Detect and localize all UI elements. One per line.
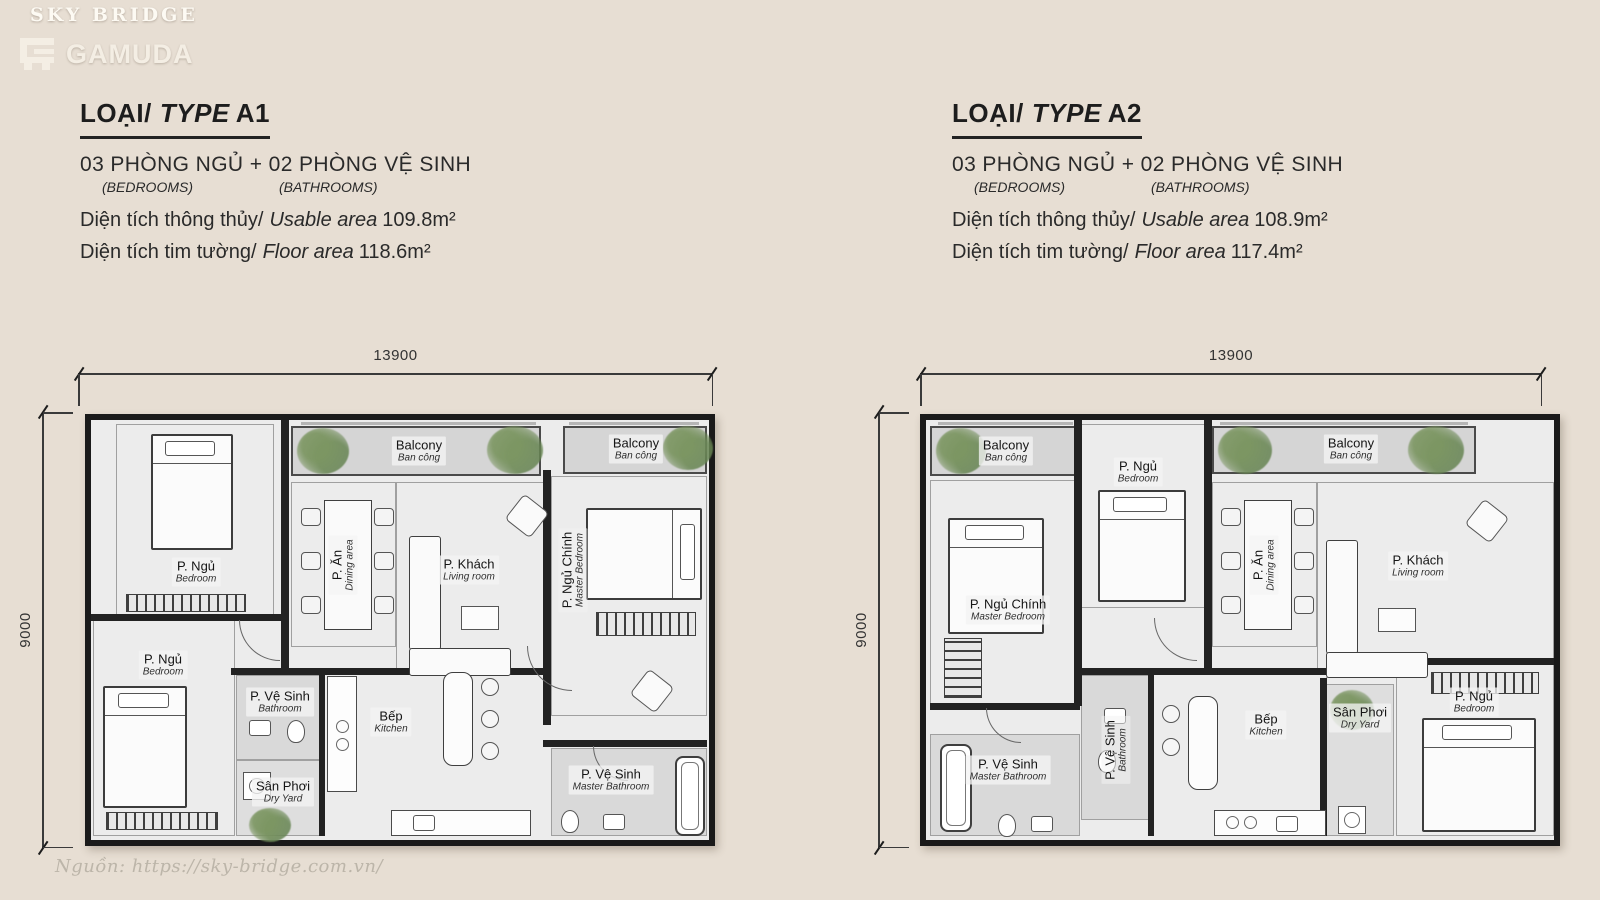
bed-icon [151,434,233,550]
cooktop-burner-icon [336,738,349,751]
room-label: Sân PhơiDry Yard [252,777,314,806]
room-config-subs: (BEDROOMS) (BATHROOMS) [80,179,640,195]
window-strip [938,422,1073,425]
wardrobe-icon [944,638,982,698]
unit-title-a2: LOẠI/TYPEA2 [952,98,1142,139]
room-label: P. Vệ SinhBathroom [246,687,314,716]
chair-icon [374,552,394,570]
chair-icon [301,508,321,526]
chair-icon [1294,508,1314,526]
dimension-value: 9000 [853,612,870,647]
bed-icon [1098,490,1186,602]
chair-icon [1294,596,1314,614]
room-label: P. KháchLiving room [439,555,499,584]
dimension-value: 13900 [373,347,417,364]
room-config-subs: (BEDROOMS) (BATHROOMS) [952,179,1512,195]
room-label: P. NgủBedroom [172,557,221,586]
dimension-width-a2: 13900 [920,347,1542,407]
room-label: BếpKitchen [370,707,411,736]
plant-icon [297,428,349,474]
sink-icon [1031,816,1053,832]
room-label: P. Vệ SinhMaster Bathroom [569,765,654,794]
bathrooms-sub: (BATHROOMS) [279,179,378,195]
chair-icon [1294,552,1314,570]
unit-spec-a1: LOẠI/TYPEA1 03 PHÒNG NGỦ + 02 PHÒNG VỆ S… [80,98,640,264]
floor-label-en: Floor area [263,241,354,263]
bed-icon [1422,718,1536,832]
usable-area-line: Diện tích thông thủy/Usable area109.8m² [80,209,640,232]
window-strip [569,422,699,425]
sofa-icon [1326,540,1358,654]
kitchen-counter-icon [327,676,357,792]
wall-segment [1204,420,1212,670]
floor-area-line: Diện tích tim tường/Floor area117.4m² [952,241,1512,264]
usable-label-en: Usable area [269,209,377,231]
type-prefix: LOẠI/ [80,98,152,128]
dimension-value: 9000 [17,612,34,647]
wall-segment [1081,668,1331,675]
flyer-canvas: SKY BRIDGE GAMUDA LOẠI/TYPEA1 03 P [0,0,1600,900]
room-label: P. NgủBedroom [1450,687,1499,716]
type-code: A1 [236,98,270,128]
bedrooms-sub: (BEDROOMS) [102,179,193,195]
floor-label-en: Floor area [1135,241,1226,263]
usable-value: 108.9m² [1254,209,1327,231]
cooktop-burner-icon [1226,816,1239,829]
floor-label-vi: Diện tích tim tường/ [80,241,257,263]
room-label: BalconyBan công [979,436,1033,465]
type-prefix: LOẠI/ [952,98,1024,128]
coffee-table-icon [1378,608,1416,632]
type-word: TYPE [1032,98,1102,128]
dimension-height-a1: 9000 [16,412,76,848]
stool-icon [481,678,499,696]
floor-label-vi: Diện tích tim tường/ [952,241,1129,263]
room-label: P. ĂnDining area [328,535,357,594]
room-label: BalconyBan công [609,434,663,463]
door-arc-icon [239,620,280,661]
room-label: P. Vệ SinhBathroom [1101,716,1130,784]
unit-spec-a2: LOẠI/TYPEA2 03 PHÒNG NGỦ + 02 PHÒNG VỆ S… [952,98,1512,264]
wardrobe-icon [126,594,246,612]
usable-area-line: Diện tích thông thủy/Usable area108.9m² [952,209,1512,232]
usable-label-en: Usable area [1141,209,1249,231]
chair-icon [301,596,321,614]
room-label: BếpKitchen [1245,710,1286,739]
gamuda-monogram-icon [18,34,56,74]
floor-value: 117.4m² [1231,241,1303,263]
floor-area-line: Diện tích tim tường/Floor area118.6m² [80,241,640,264]
wall-segment [319,675,325,836]
floor-value: 118.6m² [359,241,431,263]
room-label: P. NgủBedroom [139,650,188,679]
stool-icon [1162,738,1180,756]
plant-icon [663,426,713,470]
toilet-icon [561,810,579,833]
sink-icon [413,815,435,831]
sofa-icon [409,536,441,650]
room-label: P. Ngủ ChínhMaster Bedroom [558,528,587,612]
wardrobe-icon [596,612,696,636]
chair-icon [1221,508,1241,526]
toilet-icon [998,814,1016,837]
sink-icon [1276,816,1298,832]
room-label: P. Vệ SinhMaster Bathroom [966,755,1051,784]
bathrooms-sub: (BATHROOMS) [1151,179,1250,195]
brand-block: SKY BRIDGE GAMUDA [18,4,198,74]
coffee-table-icon [461,606,499,630]
wardrobe-icon [106,812,218,830]
plant-icon [249,808,291,842]
window-strip [1220,422,1468,425]
kitchen-island-icon [1188,696,1218,790]
chair-icon [374,596,394,614]
bed-icon [103,686,187,808]
cooktop-burner-icon [1244,816,1257,829]
bathtub-icon [675,756,705,836]
room-label: BalconyBan công [392,436,446,465]
sofa-icon [1326,652,1428,678]
window-strip [301,422,536,425]
bedrooms-sub: (BEDROOMS) [974,179,1065,195]
chair-icon [1221,552,1241,570]
cooktop-burner-icon [336,720,349,733]
toilet-icon [287,720,305,743]
stool-icon [481,742,499,760]
dimension-value: 13900 [1209,347,1253,364]
wall-segment [1148,675,1154,836]
dimension-height-a2: 9000 [852,412,912,848]
plant-icon [487,426,543,474]
room-label: Sân PhơiDry Yard [1329,703,1391,732]
usable-value: 109.8m² [382,209,455,231]
room-label: BalconyBan công [1324,434,1378,463]
type-word: TYPE [160,98,230,128]
plant-icon [1218,426,1272,474]
chair-icon [1221,596,1241,614]
chair-icon [301,552,321,570]
room-label: P. ĂnDining area [1249,535,1278,594]
door-arc-icon [1154,618,1197,661]
room-label: P. KháchLiving room [1388,551,1448,580]
kitchen-counter-icon [391,810,531,836]
sink-icon [249,720,271,736]
room-label: P. NgủBedroom [1114,457,1163,486]
usable-label-vi: Diện tích thông thủy/ [80,209,263,231]
chair-icon [374,508,394,526]
source-note: Nguồn: https://sky-bridge.com.vn/ [55,856,383,877]
room-label: P. Ngủ ChínhMaster Bedroom [966,595,1050,624]
wall-segment [281,420,289,668]
room-config-line: 03 PHÒNG NGỦ + 02 PHÒNG VỆ SINH [952,153,1512,177]
washing-machine-icon [1338,806,1366,834]
wall-segment [1074,420,1082,706]
bed-icon [586,508,702,600]
type-code: A2 [1108,98,1142,128]
developer-name: GAMUDA [66,39,194,70]
stool-icon [481,710,499,728]
dimension-width-a1: 13900 [78,347,713,407]
plant-icon [1408,426,1464,474]
sink-icon [603,814,625,830]
stool-icon [1162,705,1180,723]
kitchen-island-icon [443,672,473,766]
floorplan-a2: BalconyBan công P. NgủBedroom BalconyBan… [920,414,1560,846]
project-name: SKY BRIDGE [30,4,198,26]
unit-title-a1: LOẠI/TYPEA1 [80,98,270,139]
usable-label-vi: Diện tích thông thủy/ [952,209,1135,231]
floorplan-a1: P. NgủBedroom BalconyBan công BalconyBan… [85,414,715,846]
room-config-line: 03 PHÒNG NGỦ + 02 PHÒNG VỆ SINH [80,153,640,177]
